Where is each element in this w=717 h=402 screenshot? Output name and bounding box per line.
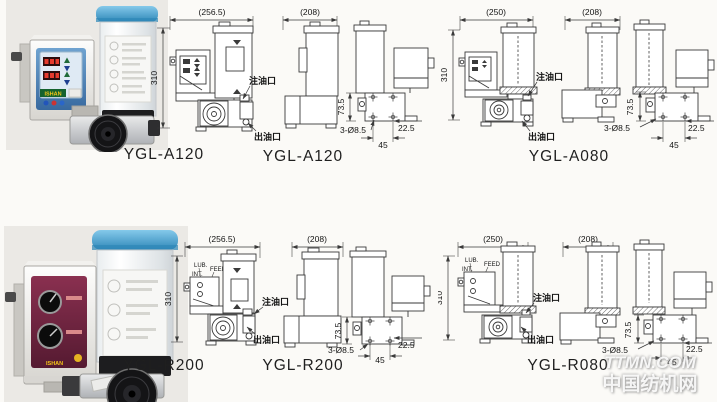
reservoir-outline: [500, 23, 537, 99]
photo-ygl-r200: ISHAN: [4, 226, 188, 402]
reservoir-outline: [213, 22, 253, 98]
mount-bolt: [11, 52, 22, 61]
dim-offset-label: 22.5: [398, 123, 415, 133]
brand-logo-text: ISHAN: [46, 361, 63, 367]
pump-outline: [481, 95, 533, 126]
motor-box: [676, 50, 708, 87]
dim-height-label: 310: [438, 291, 444, 305]
panel-button-blue-2[interactable]: [60, 101, 65, 106]
dim-holes-label: 3-Ø8.5: [602, 345, 628, 355]
dim-pitch: 45: [358, 344, 402, 365]
outlet-port: [246, 333, 252, 339]
motor-box: [674, 272, 706, 308]
dim-height: 310: [150, 28, 170, 128]
side-view-left: [285, 22, 339, 128]
dim-offset-label: 22.5: [398, 340, 415, 350]
dim-depth-label: (208): [582, 7, 602, 17]
pump-outline: [196, 95, 253, 131]
pump-outline: [480, 310, 532, 343]
inlet-port-label: 注油口: [249, 75, 276, 86]
dim-flange-label: 73.5: [336, 98, 346, 115]
dim-flange-label: 73.5: [623, 321, 633, 338]
dim-flange-height: 73.5: [625, 92, 646, 121]
dim-flange-height: 73.5: [623, 315, 644, 343]
knob-label-lub: LUB.: [194, 263, 208, 269]
dim-depth-label: (208): [307, 234, 327, 244]
side-view-right: [350, 247, 430, 346]
inlet-port: [243, 309, 252, 315]
photo-ygl-a120: ISHAN: [6, 0, 168, 152]
model-label-r080: YGL-R080: [522, 357, 614, 375]
side-view-left: [560, 242, 620, 344]
reservoir-outline: [221, 250, 256, 313]
panel-button-red[interactable]: [52, 101, 57, 106]
model-label-a120-photo: YGL-A120: [118, 146, 210, 164]
dim-height-label: 310: [150, 71, 159, 85]
model-label-r200-photo: YGL-R200: [118, 357, 210, 375]
dim-holes-label: 3-Ø8.5: [340, 125, 366, 135]
dim-holes-label: 3-Ø8.5: [328, 345, 354, 355]
knob-symbol-bottom: [471, 289, 476, 294]
dim-pitch-label: 45: [669, 140, 679, 150]
dim-width-label: (256.5): [199, 7, 226, 17]
knob-symbol-bottom: [198, 292, 203, 297]
model-label-a080: YGL-A080: [524, 148, 614, 166]
dim-pitch-label: 45: [375, 355, 385, 365]
outlet-port-label: 出油口: [253, 334, 280, 345]
knob-symbol-top: [471, 279, 476, 284]
motor-box: [394, 48, 428, 88]
outlet-port: [524, 115, 530, 121]
brand-logo-text: ISHAN: [44, 92, 61, 98]
dim-width-label: (250): [483, 234, 503, 244]
model-label-r200-drawing: YGL-R200: [258, 357, 348, 375]
dim-offset-label: 22.5: [686, 344, 703, 354]
drawing-a120-side: (208) 73.5 3-Ø8.5 22.5 45: [277, 2, 440, 154]
reservoir: [96, 6, 158, 124]
side-view-right: [354, 21, 434, 122]
outlet-port-label: 出油口: [528, 131, 555, 142]
drawing-a080-front: (250) 310 注油口 出油口: [440, 2, 565, 150]
side-view-right: [633, 240, 712, 344]
dim-height-label: 310: [440, 68, 449, 82]
dim-width: (250): [460, 7, 533, 30]
dim-width-label: (256.5): [209, 234, 236, 244]
dim-offset-label: 22.5: [688, 123, 705, 133]
model-label-a120-drawing: YGL-A120: [258, 148, 348, 166]
side-view-right: [633, 20, 714, 122]
outlet-port-label: 出油口: [527, 334, 554, 345]
side-view-left: [562, 23, 620, 122]
knob-label-feed: FEED: [484, 262, 501, 268]
dim-pitch-label: 45: [667, 357, 677, 367]
dim-height: 310: [440, 30, 460, 120]
motor-box: [392, 276, 424, 311]
knob-symbol-top: [198, 283, 203, 288]
knob-label-lub: LUB.: [465, 258, 479, 264]
mount-bolt: [5, 292, 16, 302]
inlet-port: [523, 95, 531, 100]
drawing-a080-side: (208) 73.5 3-Ø8.5 22.5 45: [558, 2, 717, 154]
dim-holes-label: 3-Ø8.5: [604, 123, 630, 133]
dim-height: 310: [438, 256, 455, 340]
dim-height: 310: [165, 256, 183, 342]
dim-flange-label: 73.5: [333, 322, 343, 339]
dim-depth-label: (208): [300, 7, 320, 17]
dim-flange-label: 73.5: [625, 98, 635, 115]
indicator-lamp: [74, 354, 82, 362]
drawing-a120-front: (256.5) 310 注油口 出油口: [150, 2, 290, 150]
reservoir-outline: [500, 242, 536, 313]
pump-outline: [206, 309, 256, 345]
dim-pitch-label: 45: [378, 140, 388, 150]
dim-flange-height: 73.5: [336, 93, 356, 121]
dim-height-label: 310: [165, 292, 173, 306]
controller-outline: [184, 277, 223, 314]
outlet-port: [243, 119, 249, 125]
controller-outline: [458, 272, 504, 312]
panel-button-blue[interactable]: [44, 101, 49, 106]
dim-width-label: (250): [486, 7, 506, 17]
